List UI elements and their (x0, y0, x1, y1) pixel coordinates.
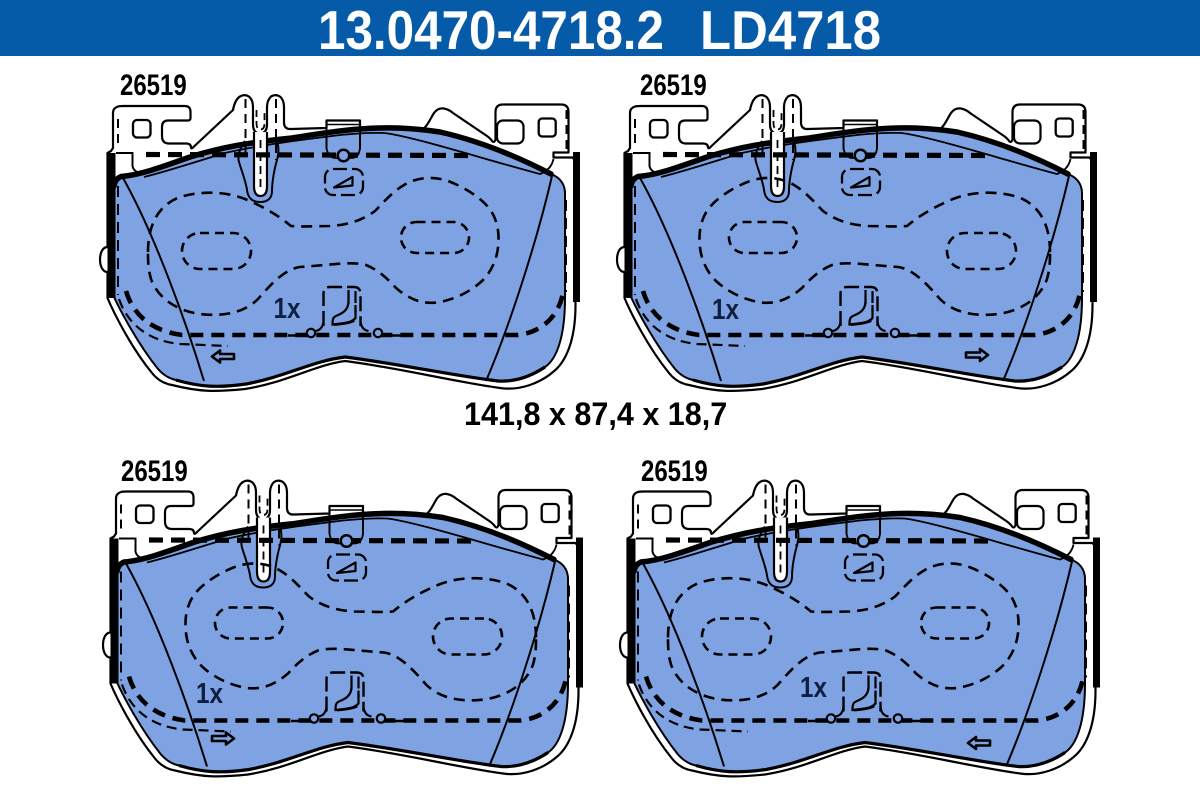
svg-text:26519: 26519 (640, 67, 707, 101)
svg-text:1x: 1x (274, 292, 301, 324)
svg-text:26519: 26519 (641, 453, 708, 487)
svg-text:13.0470-4718.2: 13.0470-4718.2 (318, 0, 664, 61)
svg-text:141,8 x 87,4 x 18,7: 141,8 x 87,4 x 18,7 (464, 396, 727, 432)
svg-text:1x: 1x (712, 293, 739, 325)
svg-text:26519: 26519 (121, 453, 188, 487)
svg-text:1x: 1x (196, 677, 223, 709)
svg-text:LD4718: LD4718 (700, 0, 881, 61)
svg-text:1x: 1x (800, 671, 827, 703)
svg-text:26519: 26519 (120, 67, 187, 101)
